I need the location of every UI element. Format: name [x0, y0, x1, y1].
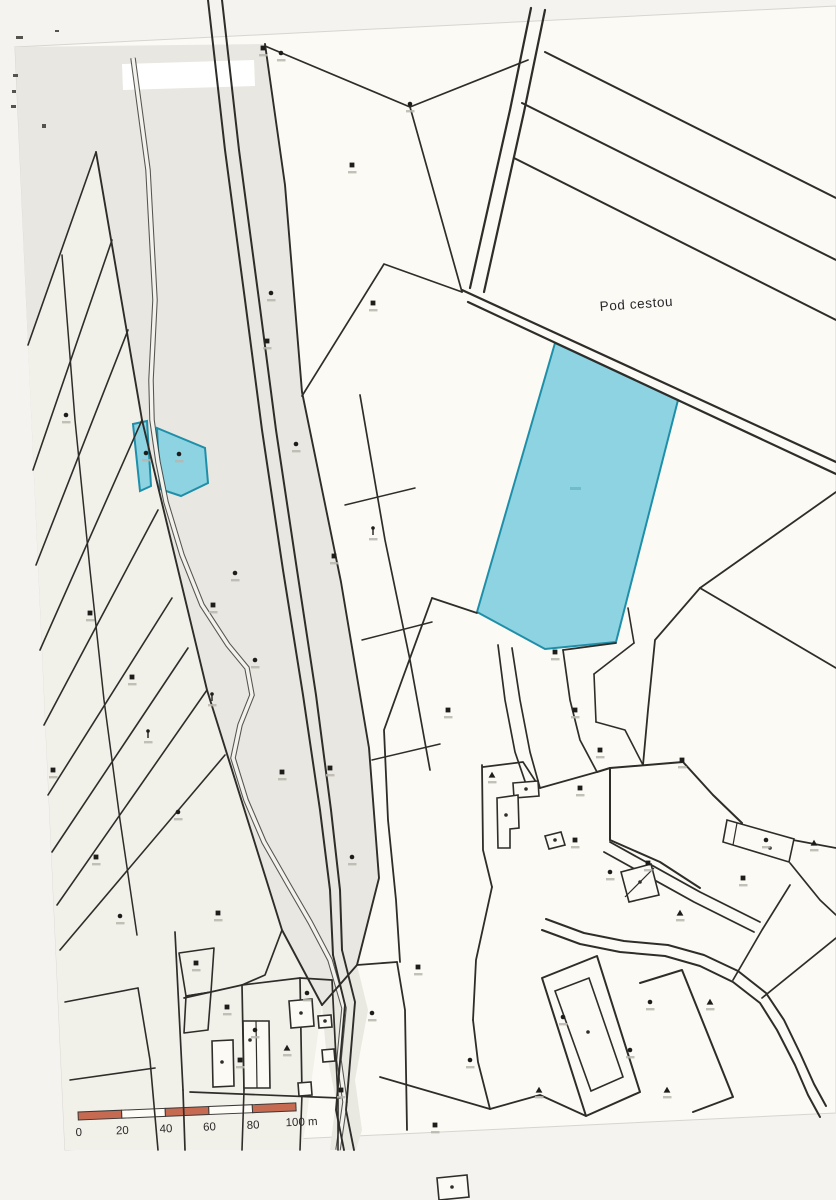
scale-bar-segment	[78, 1110, 122, 1120]
building-dot	[220, 1060, 224, 1064]
landuse-square-symbol	[94, 855, 99, 860]
parcel-number-smudge	[369, 538, 378, 540]
landuse-dot-symbol	[233, 571, 238, 576]
landuse-square-symbol	[350, 163, 355, 168]
landuse-dot-symbol	[468, 1058, 473, 1063]
parcel-number-smudge	[444, 716, 453, 718]
building-footprint	[298, 1082, 312, 1096]
scan-artifact-mark	[12, 90, 16, 93]
parcel-number-smudge	[236, 1066, 245, 1068]
scan-artifact-mark	[16, 36, 23, 39]
scale-bar-segment	[165, 1107, 209, 1117]
building-dot	[450, 1185, 454, 1189]
landuse-square-symbol	[265, 339, 270, 344]
cadastral-map-scan: 020406080100 m Pod cestou	[0, 0, 836, 1200]
landuse-dot-symbol	[176, 810, 181, 815]
landuse-dot-symbol	[294, 442, 299, 447]
parcel-number-smudge	[223, 1013, 232, 1015]
landuse-dot-symbol	[764, 838, 769, 843]
parcel-number-smudge	[466, 1066, 475, 1068]
landuse-square-symbol	[332, 554, 337, 559]
parcel-number-smudge	[326, 774, 335, 776]
scan-artifact-mark	[55, 30, 59, 32]
landuse-square-symbol	[371, 301, 376, 306]
parcel-number-smudge	[128, 683, 137, 685]
scale-label: 80	[246, 1119, 259, 1132]
landuse-square-symbol	[225, 1005, 230, 1010]
scale-bar-segment	[209, 1105, 253, 1115]
parcel-number-smudge	[174, 818, 183, 820]
building-dot	[524, 787, 528, 791]
landuse-dot-symbol	[628, 1048, 633, 1053]
parcel-number-smudge	[551, 658, 560, 660]
landuse-square-symbol	[328, 766, 333, 771]
parcel-number-smudge	[263, 347, 272, 349]
parcel-number-smudge	[678, 766, 687, 768]
landuse-square-symbol	[598, 748, 603, 753]
parcel-number-smudge	[251, 1036, 260, 1038]
parcel-number-smudge	[277, 59, 286, 61]
parcel-number-smudge	[810, 849, 819, 851]
scale-label: 60	[203, 1121, 216, 1134]
landuse-square-symbol	[216, 911, 221, 916]
landuse-dot-symbol	[648, 1000, 653, 1005]
scale-bar-segment	[252, 1103, 296, 1113]
building-dot	[504, 813, 508, 817]
parcel-number-smudge	[337, 1096, 346, 1098]
parcel-number-smudge	[348, 171, 357, 173]
parcel-number-smudge	[676, 919, 685, 921]
building-dot	[638, 880, 642, 884]
parcel-number-smudge	[644, 869, 653, 871]
parcel-number-smudge	[175, 460, 184, 462]
landuse-square-symbol	[680, 758, 685, 763]
scanned-map-page: 020406080100 m Pod cestou	[0, 0, 836, 1200]
landuse-dot-symbol	[408, 102, 413, 107]
parcel-number-smudge	[431, 1131, 440, 1133]
landuse-tree-symbol	[371, 526, 375, 530]
landuse-dot-symbol	[279, 51, 284, 56]
parcel-number-smudge	[406, 110, 415, 112]
landuse-square-symbol	[130, 675, 135, 680]
parcel-number-smudge	[267, 299, 276, 301]
parcel-number-smudge	[292, 450, 301, 452]
parcel-number-smudge	[208, 704, 217, 706]
landuse-dot-symbol	[269, 291, 274, 296]
parcel-number-smudge	[606, 878, 615, 880]
landuse-dot-symbol	[561, 1015, 566, 1020]
parcel-number-smudge	[214, 919, 223, 921]
scan-artifact-mark	[11, 105, 16, 108]
parcel-number-smudge	[192, 969, 201, 971]
landuse-square-symbol	[238, 1058, 243, 1063]
parcel-number-smudge	[209, 611, 218, 613]
landuse-dot-symbol	[64, 413, 69, 418]
parcel-number-smudge	[259, 54, 268, 56]
parcel-number-smudge	[706, 1008, 715, 1010]
landuse-dot-symbol	[305, 991, 310, 996]
landuse-square-symbol	[416, 965, 421, 970]
scale-bar-segment	[122, 1108, 166, 1118]
parcel-number-smudge	[626, 1056, 635, 1058]
building-dot	[323, 1019, 327, 1023]
building-dot	[299, 1011, 303, 1015]
scale-label: 40	[159, 1123, 172, 1136]
landuse-dot-symbol	[177, 452, 182, 457]
landuse-square-symbol	[646, 861, 651, 866]
landuse-square-symbol	[280, 770, 285, 775]
landuse-square-symbol	[573, 708, 578, 713]
parcel-number-smudge	[303, 999, 312, 1001]
parcel-number-smudge	[571, 716, 580, 718]
scale-label: 0	[75, 1127, 82, 1139]
landuse-square-symbol	[553, 650, 558, 655]
landuse-square-symbol	[194, 961, 199, 966]
parcel-number-smudge	[414, 973, 423, 975]
parcel-number-smudge	[116, 922, 125, 924]
parcel-number-smudge	[348, 863, 357, 865]
parcel-number-smudge	[62, 421, 71, 423]
parcel-number-smudge	[49, 776, 58, 778]
landuse-dot-symbol	[608, 870, 613, 875]
landuse-square-symbol	[573, 838, 578, 843]
landuse-dot-symbol	[118, 914, 123, 919]
parcel-number-smudge	[663, 1096, 672, 1098]
parcel-number-smudge	[559, 1023, 568, 1025]
landuse-square-symbol	[211, 603, 216, 608]
landuse-square-symbol	[578, 786, 583, 791]
parcel-number-smudge	[283, 1054, 292, 1056]
landuse-dot-symbol	[370, 1011, 375, 1016]
parcel-number-smudge	[596, 756, 605, 758]
landuse-tree-symbol	[210, 692, 214, 696]
building-dot	[553, 838, 557, 842]
landuse-square-symbol	[446, 708, 451, 713]
parcel-number-smudge	[535, 1096, 544, 1098]
parcel-number-smudge	[251, 666, 260, 668]
scan-artifact-mark	[13, 74, 18, 77]
parcel-number-smudge	[646, 1008, 655, 1010]
parcel-number-smudge	[571, 846, 580, 848]
parcel-number-smudge	[92, 863, 101, 865]
whiteout-patch	[122, 60, 255, 90]
parcel-number-smudge	[762, 846, 771, 848]
faint-parcel-number	[570, 487, 581, 490]
landuse-square-symbol	[339, 1088, 344, 1093]
building-dot	[248, 1038, 252, 1042]
landuse-dot-symbol	[253, 658, 258, 663]
landuse-square-symbol	[741, 876, 746, 881]
landuse-tree-symbol	[146, 729, 150, 733]
scan-artifact-mark	[42, 124, 46, 128]
building-footprint	[322, 1049, 335, 1062]
scale-label: 20	[116, 1125, 129, 1138]
parcel-number-smudge	[488, 781, 497, 783]
parcel-number-smudge	[231, 579, 240, 581]
landuse-square-symbol	[51, 768, 56, 773]
landuse-dot-symbol	[350, 855, 355, 860]
parcel-number-smudge	[144, 741, 153, 743]
parcel-number-smudge	[86, 619, 95, 621]
landuse-square-symbol	[433, 1123, 438, 1128]
parcel-number-smudge	[576, 794, 585, 796]
parcel-number-smudge	[368, 1019, 377, 1021]
landuse-dot-symbol	[144, 451, 149, 456]
parcel-number-smudge	[369, 309, 378, 311]
parcel-number-smudge	[278, 778, 287, 780]
landuse-square-symbol	[261, 46, 266, 51]
landuse-dot-symbol	[253, 1028, 258, 1033]
building-dot	[586, 1030, 590, 1034]
parcel-number-smudge	[142, 459, 151, 461]
parcel-number-smudge	[330, 562, 339, 564]
landuse-square-symbol	[88, 611, 93, 616]
parcel-number-smudge	[739, 884, 748, 886]
building-footprint	[212, 1040, 234, 1087]
